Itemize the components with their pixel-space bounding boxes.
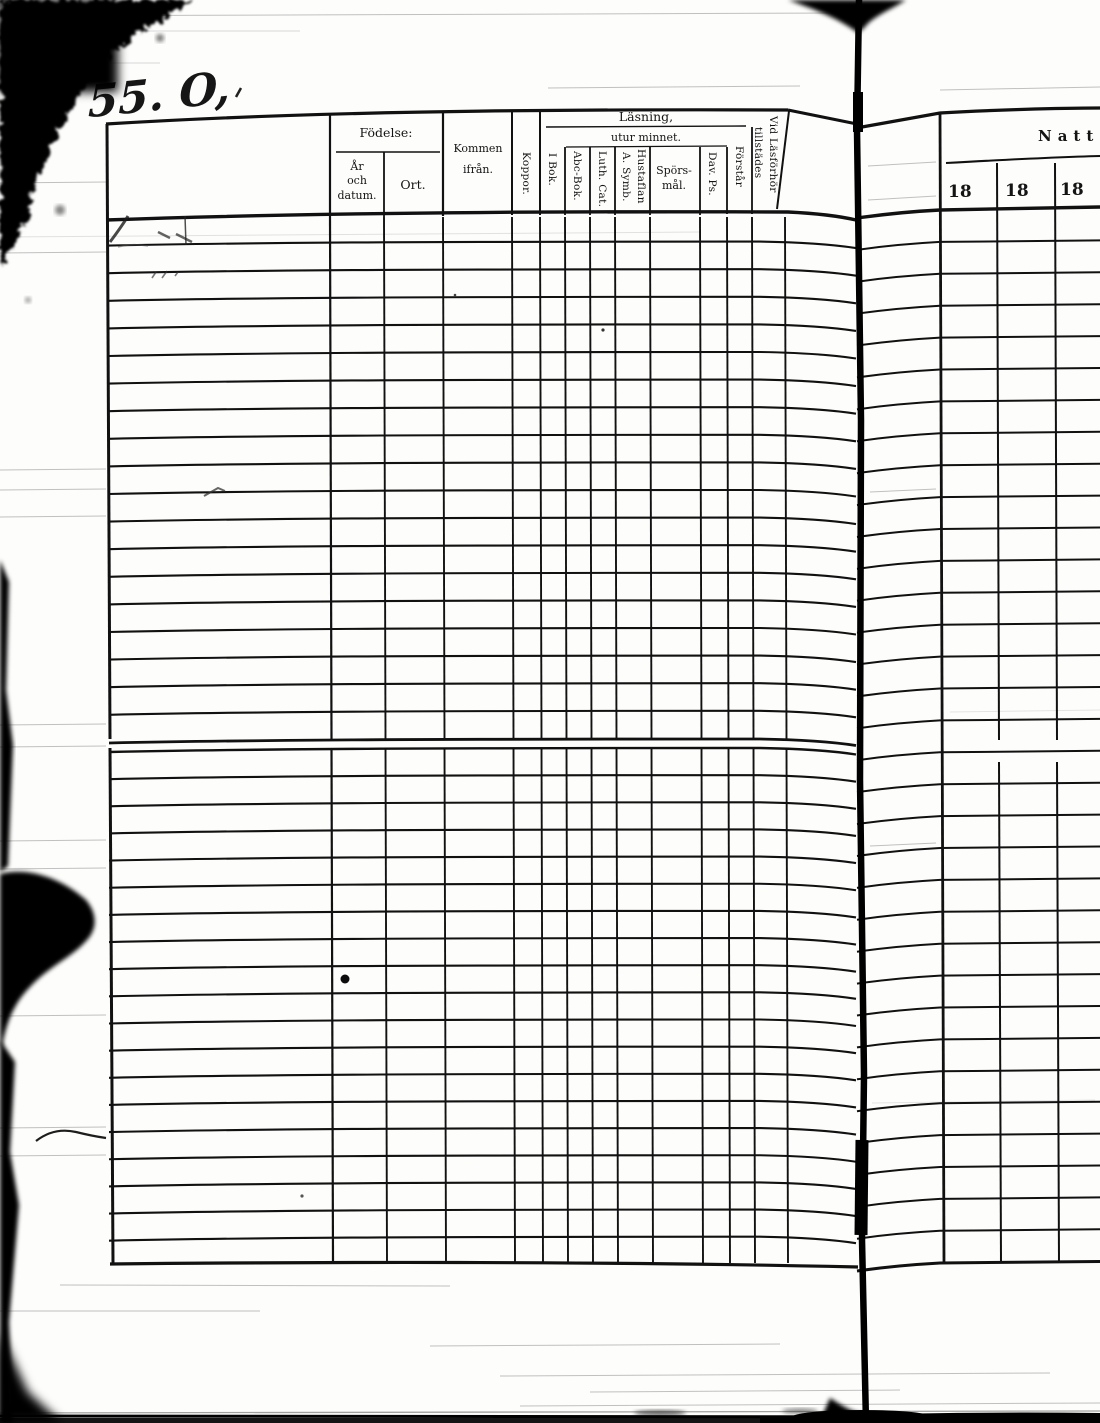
natt-title: Natt	[1038, 127, 1099, 145]
utur-minnet-group-label: utur minnet.	[611, 131, 681, 144]
dav-ps-label: Dav. Ps.	[706, 152, 718, 196]
ink-dot-2	[454, 294, 457, 297]
lasning-underline	[546, 126, 746, 127]
kommen-line2: ifrån.	[463, 163, 493, 176]
year-prefix-2: 18	[1005, 181, 1029, 201]
ink-dot-3	[300, 1194, 303, 1197]
scan-canvas: Födelse: År och datum. Ort. Kommen ifrån…	[0, 0, 1100, 1423]
sporsmal-line1: Spörs-	[656, 164, 692, 177]
luth-cat-label: Luth. Cat.	[596, 151, 608, 207]
ink-blot	[341, 975, 350, 984]
ar-line3: datum.	[337, 189, 376, 202]
i-bok-label: I Bok.	[546, 153, 558, 186]
year-prefix-3: 18	[1060, 180, 1084, 200]
ar-line1: År	[349, 159, 364, 173]
vid-lasforhor-label: Vid Läsförhör	[767, 115, 779, 193]
fodelse-group-label: Födelse:	[360, 125, 413, 140]
scanned-register-page: Födelse: År och datum. Ort. Kommen ifrån…	[0, 0, 1100, 1423]
ink-dot-1	[601, 328, 604, 331]
koppor-label: Koppor.	[520, 152, 532, 195]
ort-label: Ort.	[400, 177, 425, 192]
ar-line2: och	[347, 174, 367, 187]
tillstades-label: tillstädes	[752, 127, 764, 179]
forstar-label: Förstår	[733, 146, 746, 188]
hustaflan-label: Hustaflan	[635, 149, 647, 204]
kommen-line1: Kommen	[453, 142, 502, 155]
year-prefix-1: 18	[948, 182, 972, 202]
stray-vertical-mark	[185, 216, 186, 245]
lasning-group-label: Läsning,	[619, 109, 673, 124]
sporsmal-line2: mål.	[662, 179, 686, 192]
abc-bok-label: Abc-Bok.	[571, 150, 583, 201]
a-symb-label: A. Symb.	[620, 151, 632, 202]
